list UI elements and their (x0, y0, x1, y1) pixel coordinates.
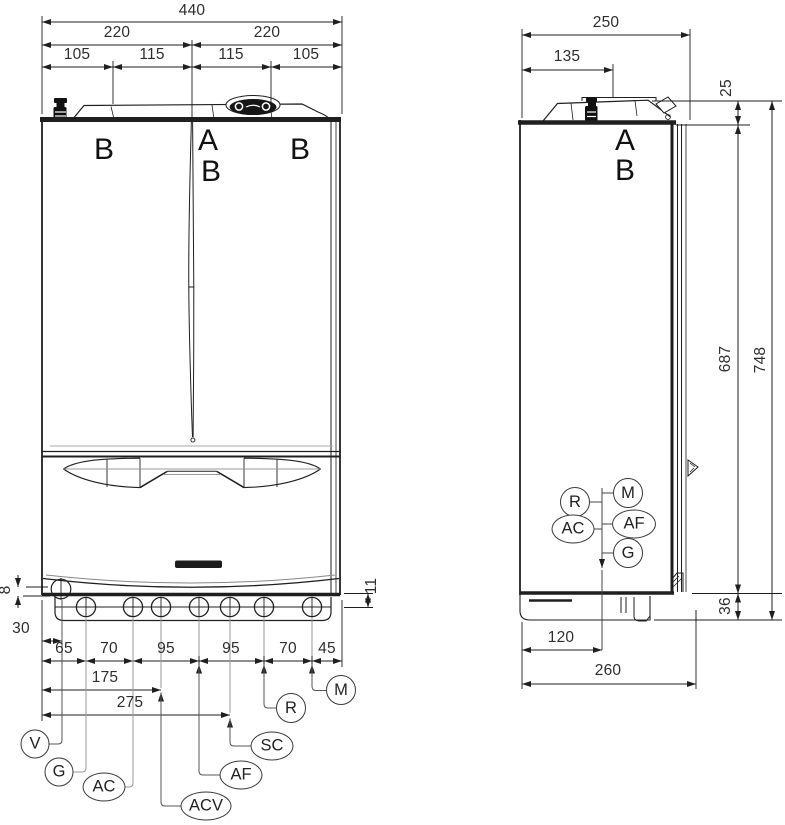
dim-front-offset: 30 (12, 620, 30, 638)
safety-valve-icon (54, 98, 68, 120)
tag-sc: SC (251, 732, 294, 761)
tag-side-r: R (560, 487, 590, 517)
dim-side-body: 687 (717, 346, 735, 372)
dim-front-total-width: 440 (179, 2, 205, 20)
tag-g: G (45, 758, 74, 787)
dim-side-depth-base: 260 (595, 662, 621, 680)
dim-chain-4: 95 (222, 640, 240, 658)
tag-v: V (21, 730, 50, 759)
tag-acv: ACV (181, 792, 232, 821)
label-a-side: A (615, 124, 635, 158)
dim-side-conn: 120 (548, 629, 574, 647)
dim-front-lip: 8 (0, 586, 15, 595)
tag-side-g: G (613, 538, 643, 568)
dim-front-quarter-1: 105 (64, 46, 90, 64)
door-handle-recess (64, 458, 321, 487)
label-b-center: B (201, 155, 221, 189)
dim-chain-5: 70 (279, 640, 297, 658)
dim-chain-1: 65 (55, 640, 73, 658)
dim-side-total: 748 (752, 347, 770, 373)
dim-front-half-left: 220 (104, 24, 130, 42)
dim-front-275: 275 (117, 694, 143, 712)
tag-side-ac: AC (552, 515, 595, 544)
dim-front-drop: 11 (363, 578, 381, 595)
boiler-dimension-drawing: 440 220 220 105 115 115 105 B A B B 8 30… (0, 0, 785, 825)
dim-side-base: 36 (717, 597, 735, 615)
front-view (18, 16, 373, 806)
label-a-front: A (198, 124, 218, 158)
tag-r: R (276, 693, 306, 723)
dim-front-half-right: 220 (254, 24, 280, 42)
label-b-side: B (615, 154, 635, 188)
tag-ac: AC (83, 773, 126, 802)
side-view (518, 29, 782, 689)
side-base (520, 595, 696, 622)
front-top-dimensions (42, 16, 342, 118)
flue-outlet-icon (226, 96, 280, 116)
tag-side-af: AF (612, 510, 656, 539)
dim-side-depth: 250 (593, 14, 619, 32)
brand-logo (175, 561, 222, 569)
dim-chain-2: 70 (100, 640, 118, 658)
label-b-right: B (290, 133, 310, 167)
dim-front-quarter-4: 105 (293, 46, 319, 64)
side-connection-leaders (589, 488, 615, 650)
dim-front-quarter-3: 115 (218, 46, 243, 64)
label-b-left: B (94, 133, 114, 167)
tag-af: AF (220, 761, 263, 790)
front-casing (40, 117, 341, 595)
dim-side-cap: 25 (718, 79, 736, 97)
bottom-connection-plate (51, 578, 331, 621)
dim-front-quarter-2: 115 (139, 46, 164, 64)
dim-front-175: 175 (92, 669, 118, 687)
tag-side-m: M (613, 478, 643, 508)
dim-chain-3: 95 (157, 640, 175, 658)
front-small-dimensions (18, 575, 373, 641)
wall-bracket-icons (671, 460, 698, 592)
dim-side-flue: 135 (554, 48, 580, 66)
side-safety-valve-icon (585, 98, 598, 123)
tag-m: M (326, 675, 356, 705)
dim-chain-6: 45 (318, 640, 336, 658)
